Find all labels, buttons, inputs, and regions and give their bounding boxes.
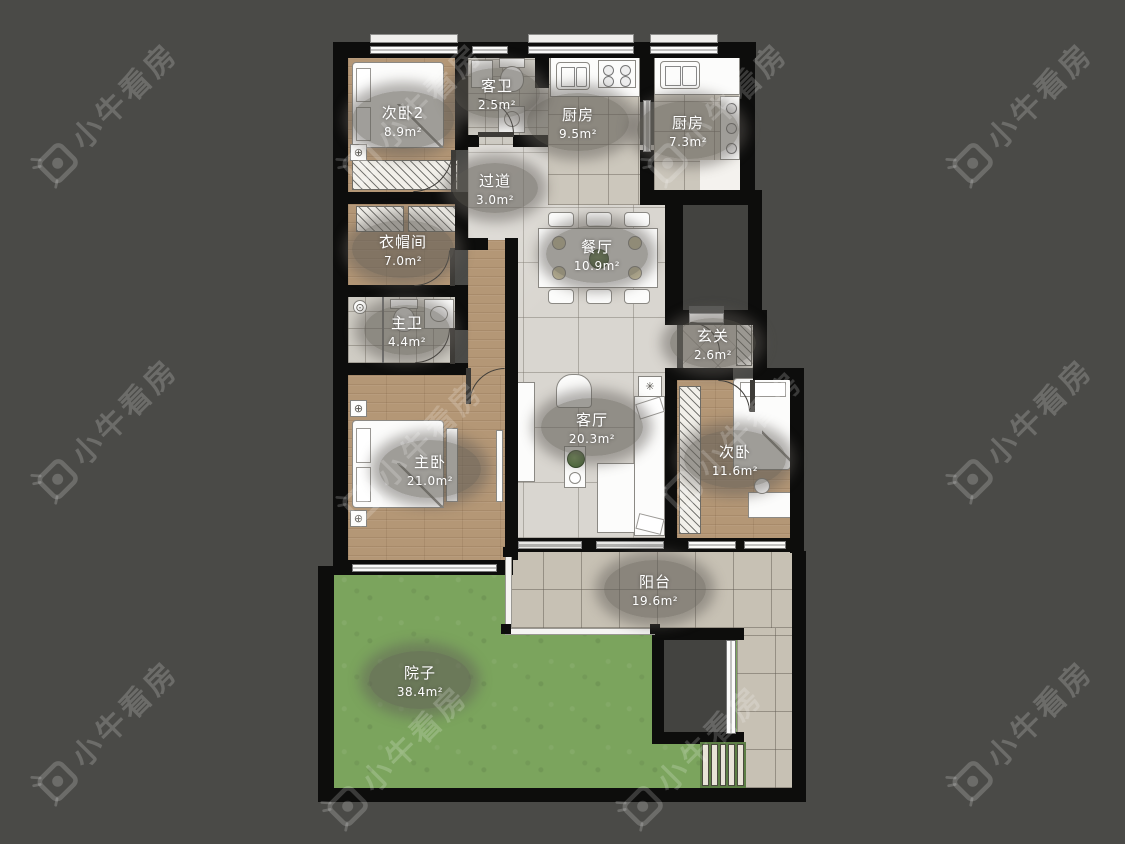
wall-bedroom-left xyxy=(665,380,677,538)
wall-cloak-bath xyxy=(333,285,468,297)
wall-kitchen-b-bottom xyxy=(645,190,762,205)
shower-partition xyxy=(382,297,384,363)
sink-basin xyxy=(665,66,681,86)
bedroom-wardrobe xyxy=(679,386,701,534)
balcony-railing-left xyxy=(505,555,512,628)
floor-drain-icon: ⊕ xyxy=(350,400,367,417)
window-kitchen-b xyxy=(650,46,718,54)
blanket-fold xyxy=(397,104,444,148)
window-bedroom-b xyxy=(744,541,786,549)
dining-chair xyxy=(586,212,612,227)
sliding-door-kitchen xyxy=(643,100,651,152)
kitchen-b-sink xyxy=(660,61,700,89)
armchair xyxy=(556,374,592,408)
burner xyxy=(726,123,737,134)
floor-drain-icon: ⊕ xyxy=(350,510,367,527)
kitchen-a-sink xyxy=(556,62,590,90)
wall-living-left xyxy=(505,238,518,560)
sofa-main xyxy=(634,396,665,536)
floor-drain-icon: ⊕ xyxy=(350,144,367,161)
xiaoniu-bull-icon xyxy=(23,131,85,193)
floor-plan-canvas: ⊕ ⊙ ⊕ ⊕ xyxy=(0,0,1125,844)
wall-tv xyxy=(496,430,503,502)
pillow xyxy=(356,107,371,141)
table-cup xyxy=(569,472,581,484)
burner xyxy=(726,103,737,114)
watermark: 小牛看房 xyxy=(23,648,186,811)
sliding-door-balcony-b xyxy=(596,541,664,549)
window-bedroom-a xyxy=(688,541,736,549)
burner xyxy=(620,76,631,87)
bedroom2-bed xyxy=(352,62,444,148)
railing-cap xyxy=(650,624,660,634)
sofa-pillow xyxy=(635,396,665,419)
bedroom-bench xyxy=(446,428,458,502)
tv-stand xyxy=(515,382,535,482)
xiaoniu-bull-icon xyxy=(938,447,1000,509)
wall-kitchen-b-right xyxy=(740,42,755,205)
window-sill xyxy=(528,34,634,43)
stair-tread xyxy=(720,744,727,786)
window-sill xyxy=(370,34,458,43)
sink-basin xyxy=(430,306,448,322)
dining-chair xyxy=(624,289,650,304)
kitchen-b-cabinet xyxy=(700,160,740,192)
wall-lower-notch-left xyxy=(652,628,664,744)
xiaoniu-bull-icon xyxy=(23,749,85,811)
corridor-floor xyxy=(468,240,505,375)
outdoor-notch-lower xyxy=(664,640,726,734)
xiaoniu-bull-icon xyxy=(938,749,1000,811)
wall-left xyxy=(333,42,348,575)
cloakroom-wardrobe xyxy=(356,206,404,232)
window-kitchen-a xyxy=(528,46,634,54)
wall-notch-left xyxy=(665,198,683,325)
wall-bedroom2-cloak xyxy=(333,192,468,204)
wall-bedroom-top-a xyxy=(665,368,733,380)
pillow xyxy=(740,382,786,397)
burner xyxy=(603,76,614,87)
shower-head: ⊙ xyxy=(353,300,367,314)
master-bed xyxy=(352,420,444,508)
balcony-railing-bottom xyxy=(505,628,655,635)
door-leaf xyxy=(750,380,755,412)
pillow xyxy=(356,467,371,502)
dining-chair xyxy=(586,289,612,304)
plate xyxy=(552,236,566,250)
guest-bath-sink xyxy=(471,60,493,88)
watermark: 小牛看房 xyxy=(938,346,1101,509)
window-sill xyxy=(650,34,718,43)
kitchen-b-stove-unit xyxy=(720,96,740,160)
burner xyxy=(603,65,614,76)
wall-lower-notch-top xyxy=(652,628,744,640)
pillow xyxy=(356,68,371,102)
sofa-pillow xyxy=(635,513,664,535)
kitchen-a-stove xyxy=(598,60,636,88)
blanket-fold xyxy=(762,423,791,470)
stair-tread xyxy=(702,744,709,786)
wall-bedroom-right xyxy=(790,368,804,553)
door-leaf xyxy=(450,248,455,286)
wall-notch-right xyxy=(748,198,762,316)
dining-chair xyxy=(548,289,574,304)
sink-board xyxy=(682,66,697,86)
xiaoniu-bull-icon xyxy=(23,447,85,509)
window-guest-bath xyxy=(472,46,508,54)
stair-tread xyxy=(711,744,718,786)
desk-chair xyxy=(754,478,770,494)
door-leaf xyxy=(450,328,455,364)
watermark: 小牛看房 xyxy=(23,346,186,509)
centerpiece-plant xyxy=(589,249,609,269)
yard-stairs xyxy=(700,742,746,788)
master-bath-sink xyxy=(424,299,454,329)
sink-basin xyxy=(561,67,575,87)
deco-flower-icon: ✳ xyxy=(638,376,662,397)
watermark: 小牛看房 xyxy=(938,30,1101,193)
stair-tread xyxy=(728,744,735,786)
balcony-floor-top xyxy=(505,551,795,628)
blanket-fold xyxy=(397,463,444,508)
sink-board xyxy=(576,67,587,87)
burner xyxy=(620,65,631,76)
sliding-door-balcony-a xyxy=(518,541,582,549)
stair-tread xyxy=(737,744,744,786)
plate xyxy=(628,266,642,280)
wall-bedroom2-right xyxy=(455,42,468,150)
dining-chair xyxy=(624,212,650,227)
burner xyxy=(726,143,737,154)
window-master-bedroom xyxy=(352,564,497,572)
watermark: 小牛看房 xyxy=(23,30,186,193)
railing-cap xyxy=(501,624,511,634)
lower-notch-door xyxy=(726,640,736,734)
watermark: 小牛看房 xyxy=(938,648,1101,811)
wall-bath-master xyxy=(333,363,468,375)
wall-guestbath-bottom-b xyxy=(513,135,548,147)
railing-cap xyxy=(503,547,513,557)
wall-yard-bottom xyxy=(318,788,806,802)
toilet-bowl xyxy=(393,307,415,332)
outdoor-notch-upper xyxy=(683,205,753,310)
plate xyxy=(628,236,642,250)
pillow xyxy=(356,428,371,463)
wall-balcony-right xyxy=(792,551,806,802)
cloakroom-wardrobe xyxy=(408,206,456,232)
window-bedroom2 xyxy=(370,46,458,54)
plate xyxy=(552,266,566,280)
table-plant xyxy=(567,450,585,468)
desk xyxy=(748,492,792,518)
wall-corridor-stub xyxy=(468,238,488,250)
xiaoniu-bull-icon xyxy=(938,131,1000,193)
sofa-chaise xyxy=(597,463,635,533)
toilet-bowl xyxy=(500,66,524,92)
dining-chair xyxy=(548,212,574,227)
wall-yard-left xyxy=(318,566,334,802)
